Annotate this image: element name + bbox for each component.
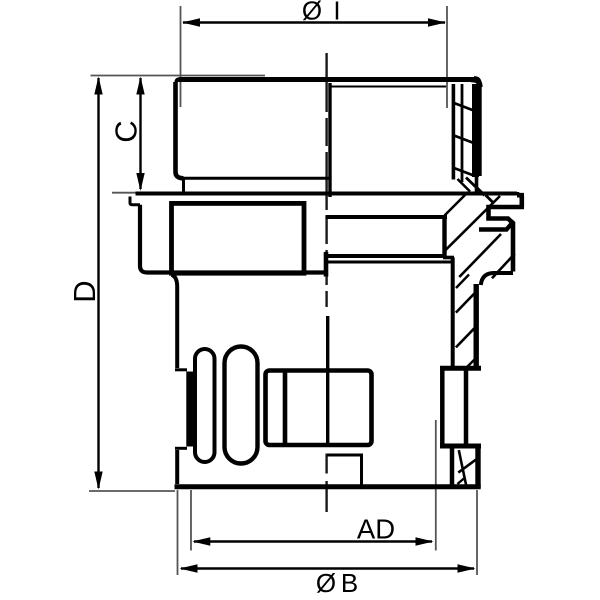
svg-text:Ø: Ø	[316, 568, 336, 598]
svg-text:Ø: Ø	[302, 0, 322, 26]
svg-text:I: I	[333, 0, 340, 26]
svg-text:C: C	[109, 120, 144, 142]
svg-text:B: B	[341, 568, 358, 598]
svg-text:AD: AD	[357, 513, 395, 544]
svg-text:D: D	[67, 280, 102, 302]
